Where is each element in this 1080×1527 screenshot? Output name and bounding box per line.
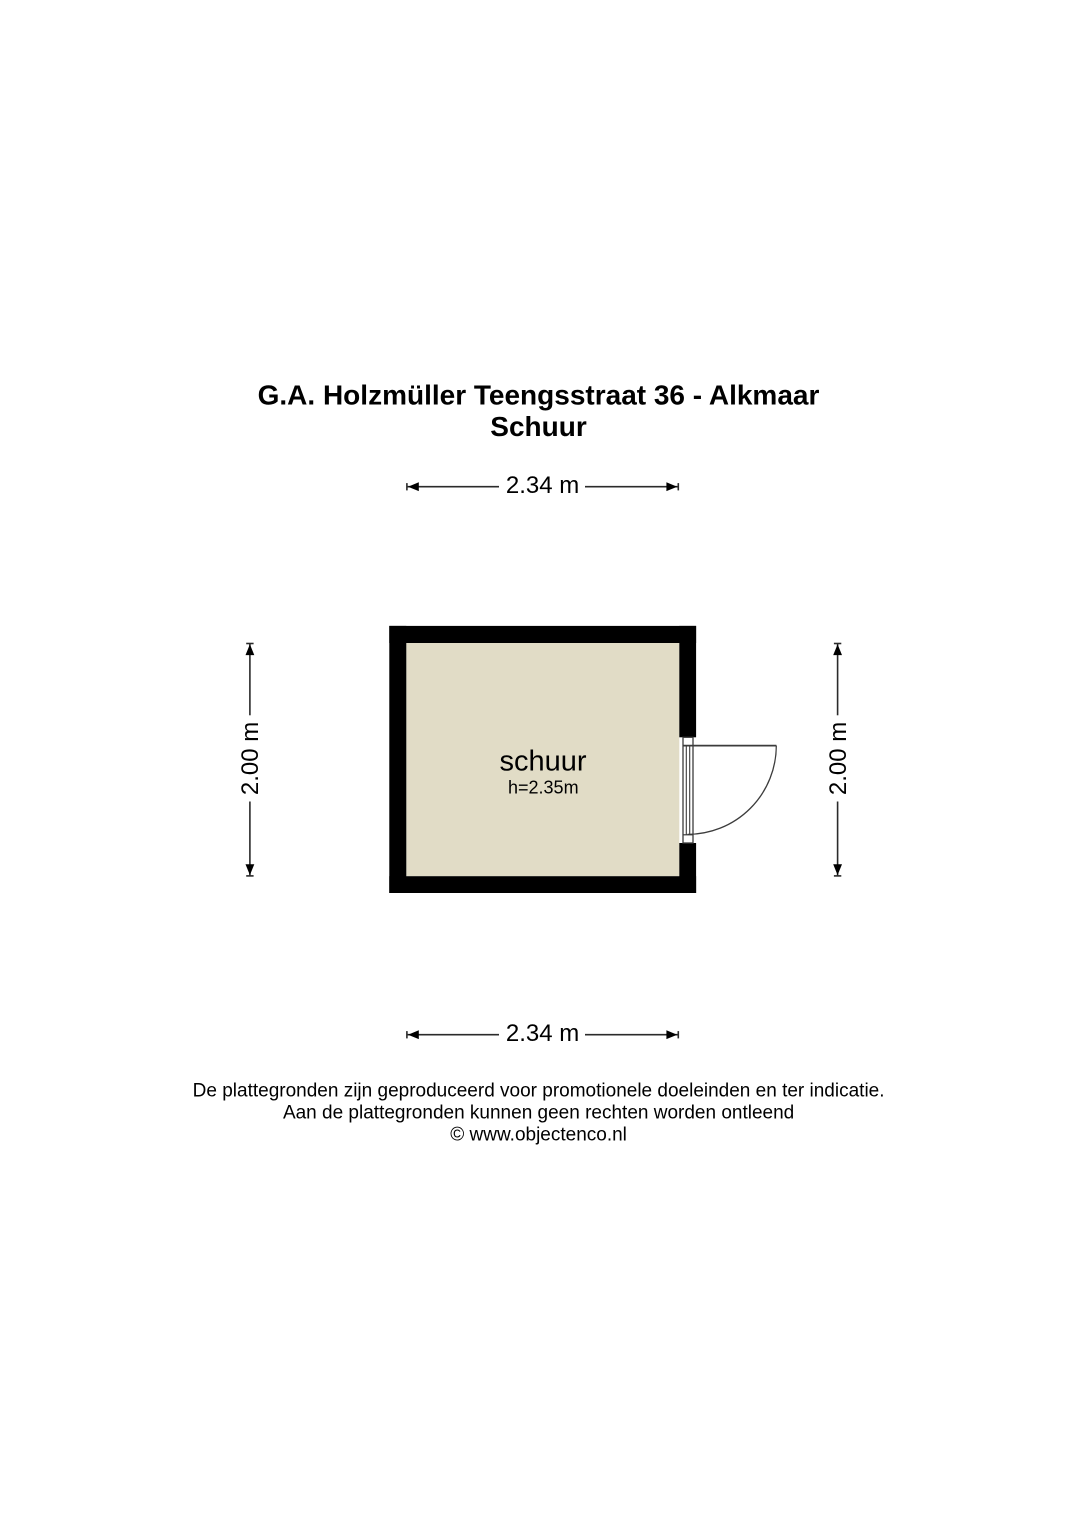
svg-text:2.00 m: 2.00 m (237, 722, 264, 795)
svg-text:© www.objectenco.nl: © www.objectenco.nl (450, 1124, 627, 1145)
svg-text:Aan de plattegronden kunnen ge: Aan de plattegronden kunnen geen rechten… (283, 1102, 794, 1123)
svg-text:schuur: schuur (499, 745, 586, 777)
svg-text:G.A. Holzmüller Teengsstraat 3: G.A. Holzmüller Teengsstraat 36 - Alkmaa… (258, 380, 820, 411)
svg-text:2.00 m: 2.00 m (825, 722, 852, 795)
svg-text:2.34 m: 2.34 m (506, 472, 579, 499)
svg-text:De plattegronden zijn geproduc: De plattegronden zijn geproduceerd voor … (193, 1080, 885, 1101)
svg-text:h=2.35m: h=2.35m (508, 778, 579, 798)
svg-text:2.34 m: 2.34 m (506, 1020, 579, 1047)
svg-text:Schuur: Schuur (490, 411, 587, 442)
